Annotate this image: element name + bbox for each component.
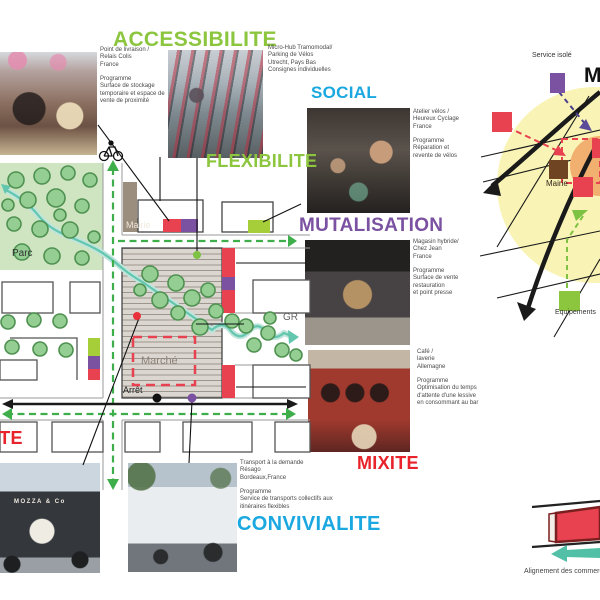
title-mixite: MIXITE (357, 453, 419, 474)
title-mutalisation: MUTALISATION (299, 215, 443, 237)
centrality-schematic (480, 73, 600, 337)
title-social: SOCIAL (311, 83, 377, 103)
food-truck-dot (133, 312, 141, 320)
title-convivialite: CONVIVIALITE (237, 513, 381, 536)
equipment-square (559, 291, 580, 311)
commerce-square-center (573, 177, 593, 197)
diagram-label-mairie: Mairie (546, 179, 568, 188)
map-label-gr: GR (283, 312, 298, 323)
caption-transport-demande: Transport à la demande Résago Bordeaux,F… (240, 460, 344, 511)
caption-cafe-laverie: Café / laverie Allemagne Programme Optim… (417, 349, 491, 407)
map-label-parc: Parc (12, 248, 33, 259)
map-label-marche: Marché (141, 355, 178, 367)
mairie-square (549, 160, 568, 179)
caption-micro-hub: Micro-Hub Tramomodal/ Parking de Vélos U… (268, 45, 342, 74)
bicycle-icon (100, 141, 123, 161)
commerce-square-west (492, 112, 512, 132)
masterplan-map (0, 125, 310, 490)
commerce-volume (556, 507, 600, 542)
map-label-arret: Arrêt (123, 385, 143, 395)
map-label-mairie: Mairie (126, 220, 151, 230)
title-left-edge-partial: MIXITE (0, 428, 23, 449)
bus-stop-dot (153, 394, 162, 403)
alignment-diagram (532, 501, 600, 562)
caption-relais-colis: Point de livraison / Relais Colis France… (100, 47, 168, 105)
diagram-label-alignement: Alignement des commerces (524, 568, 600, 575)
title-flexibilite: FLEXIBILITE (206, 151, 317, 172)
diagram-label-equipement: Equipements (555, 309, 596, 316)
commerce-square-clipped (592, 139, 600, 158)
caption-atelier-velos: Atelier vélos / Heureux Cyclage France P… (413, 109, 475, 160)
alignment-arrow (551, 545, 567, 562)
concept-board: MOZZA & Co (0, 0, 600, 600)
title-mutualisation-partial: Mutualisation (584, 64, 600, 88)
isolated-service-square (550, 73, 565, 93)
diagram-label-service-isole: Service isolé (532, 52, 572, 59)
caption-magasin-hybride: Magasin hybride/ Chez Jean France Progra… (413, 239, 477, 297)
demand-transport-dot (188, 394, 197, 403)
flex-space-dot (193, 251, 201, 259)
